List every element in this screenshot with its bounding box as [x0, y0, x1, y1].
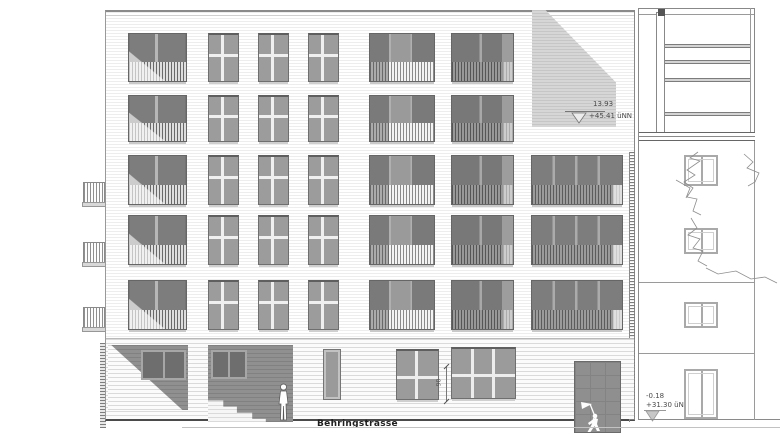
- window-standard: [308, 155, 339, 205]
- recess-window: [211, 350, 247, 379]
- side-balcony-railing: [83, 182, 105, 203]
- window-standard: [308, 33, 339, 82]
- neighbor-section-cut: [658, 9, 665, 16]
- window-standard: [308, 215, 339, 265]
- neighbor-building: [638, 8, 754, 420]
- loggia-window: [369, 215, 435, 265]
- window-standard: [208, 280, 239, 330]
- flag-figure-graffiti: [579, 401, 605, 434]
- neighbor-wall-section: [656, 12, 665, 133]
- loggia-window-wide: [531, 280, 623, 330]
- level-marker-icon: [570, 112, 588, 125]
- loggia-window: [369, 33, 435, 82]
- roof-elev-text: +45.41 üNN: [589, 112, 632, 120]
- garage-door: [574, 361, 621, 433]
- loggia-window: [128, 95, 187, 142]
- loggia-window-wide: [531, 215, 623, 265]
- window-standard: [258, 95, 289, 142]
- neighbor-floor-slab: [665, 60, 750, 64]
- person-silhouette: [276, 383, 291, 421]
- neighbor-floor-slab: [665, 44, 750, 48]
- loggia-window: [128, 155, 187, 205]
- building-elevation: [105, 10, 635, 421]
- loggia-window: [369, 95, 435, 142]
- service-door: [323, 349, 341, 400]
- ground-window-wide: [451, 347, 516, 399]
- ground-recess: [108, 345, 188, 410]
- loggia-window: [451, 280, 514, 330]
- loggia-window: [128, 33, 187, 82]
- loggia-window: [451, 155, 514, 205]
- loggia-window: [451, 215, 514, 265]
- loggia-window: [369, 155, 435, 205]
- neighbor-edge-line: [750, 8, 751, 133]
- loggia-window: [451, 95, 514, 142]
- window-standard: [258, 280, 289, 330]
- window-standard: [208, 95, 239, 142]
- architectural-elevation-drawing: 90 13.93 +45.41 üNN -0.18 +31.30 üNN Beh…: [0, 0, 780, 439]
- dimension-90: 90: [438, 366, 454, 402]
- loggia-window: [451, 33, 514, 82]
- window-standard: [208, 33, 239, 82]
- side-balcony-railing: [83, 307, 105, 328]
- neighbor-floor-line: [639, 353, 755, 354]
- window-standard: [258, 33, 289, 82]
- window-standard: [308, 280, 339, 330]
- window-standard: [258, 155, 289, 205]
- window-standard: [208, 215, 239, 265]
- neighbor-floor-slab: [665, 112, 750, 116]
- window-standard: [308, 95, 339, 142]
- loggia-window: [128, 215, 187, 265]
- neighbor-floor-slab: [665, 78, 750, 82]
- recess-window: [141, 350, 186, 380]
- loggia-window: [369, 280, 435, 330]
- loggia-window: [128, 280, 187, 330]
- roof-dim-text: 13.93: [593, 100, 613, 108]
- window-standard: [208, 155, 239, 205]
- tree-branch-sketch: [636, 140, 780, 340]
- sidewalk-line: [182, 427, 780, 428]
- dimension-line: [446, 366, 447, 402]
- loggia-window-wide: [531, 155, 623, 205]
- ground-window: [396, 349, 439, 400]
- window-standard: [258, 215, 289, 265]
- parapet-line: [106, 15, 634, 16]
- neighbor-door: [684, 369, 718, 419]
- side-balcony-railing: [83, 242, 105, 263]
- dimension-value: 90: [435, 379, 442, 387]
